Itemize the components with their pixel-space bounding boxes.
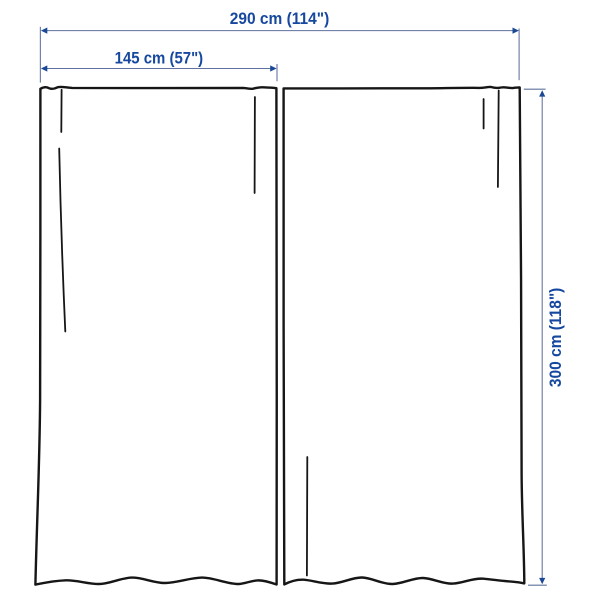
svg-text:290 cm (114"): 290 cm (114") <box>230 9 330 28</box>
svg-text:145 cm (57"): 145 cm (57") <box>115 48 204 67</box>
svg-text:300 cm (118"): 300 cm (118") <box>546 288 565 388</box>
